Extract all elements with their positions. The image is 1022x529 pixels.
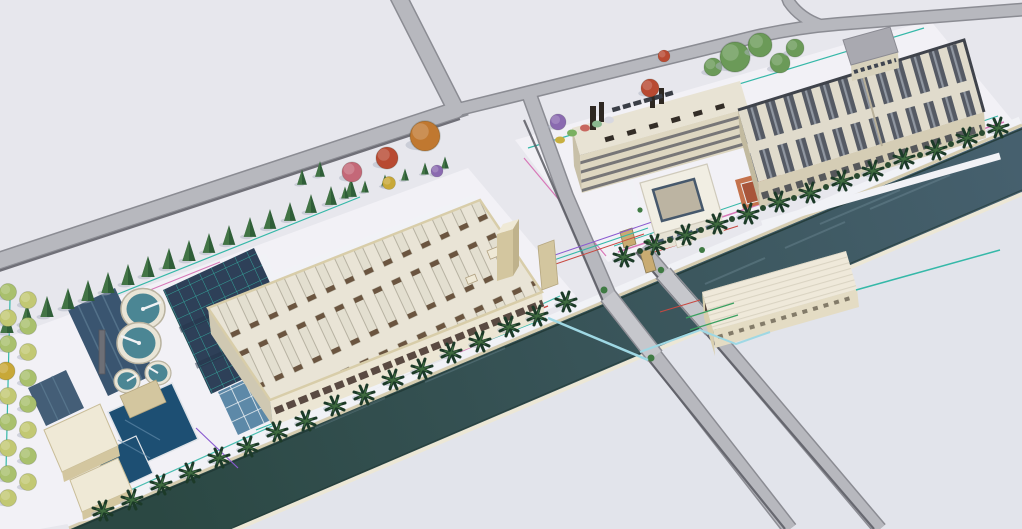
stack <box>99 330 105 374</box>
clarifier-small-2 <box>145 361 171 385</box>
clarifier-large-2 <box>117 323 161 364</box>
east-corner-block <box>538 240 558 290</box>
rendered-scene <box>0 0 1022 529</box>
site-rendering-canvas <box>0 0 1022 529</box>
